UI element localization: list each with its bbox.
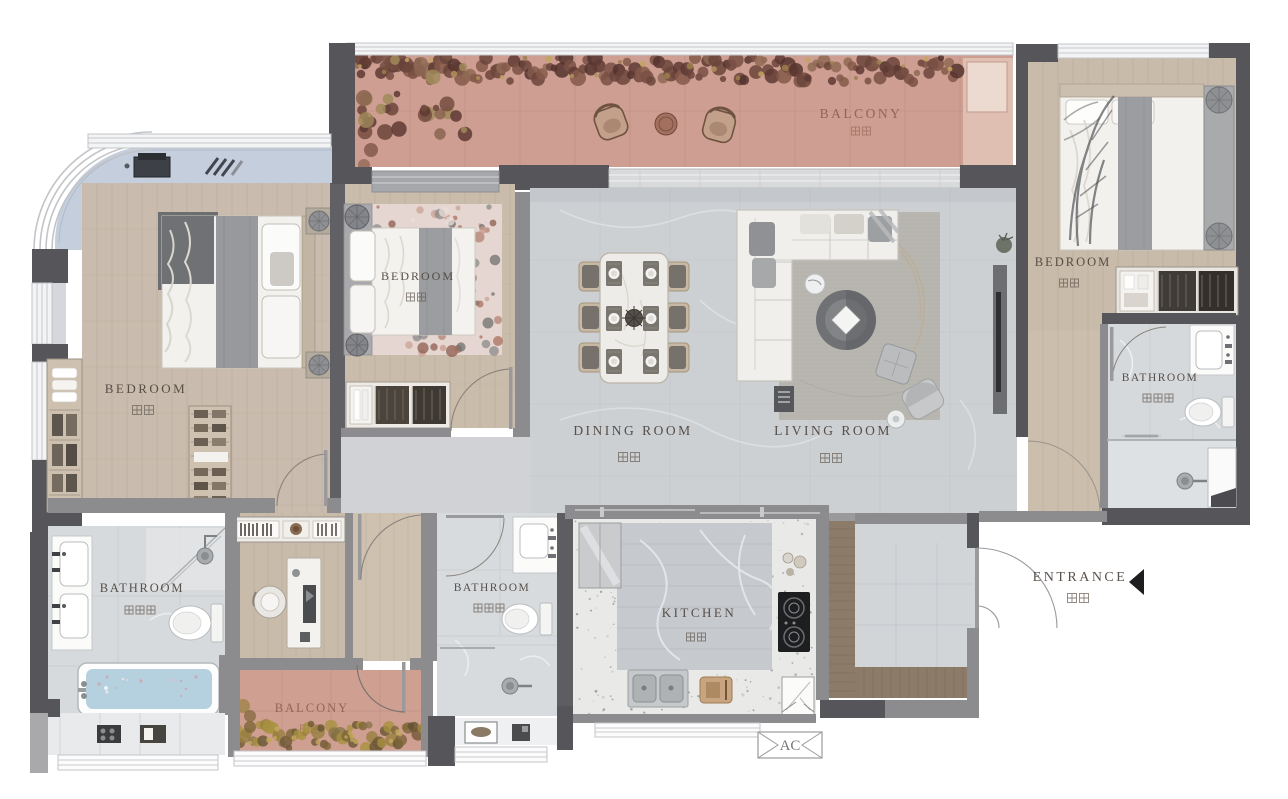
svg-text:DINING ROOM: DINING ROOM (573, 423, 692, 438)
svg-text:ENTRANCE: ENTRANCE (1033, 570, 1128, 585)
svg-text:LIVING ROOM: LIVING ROOM (774, 423, 892, 438)
svg-text:BEDROOM: BEDROOM (381, 269, 455, 283)
svg-text:AC: AC (780, 738, 801, 754)
svg-text:BATHROOM: BATHROOM (454, 582, 531, 594)
svg-text:BALCONY: BALCONY (820, 106, 903, 121)
svg-text:BEDROOM: BEDROOM (105, 381, 188, 396)
svg-text:BATHROOM: BATHROOM (1122, 372, 1199, 384)
svg-text:BATHROOM: BATHROOM (100, 581, 185, 595)
svg-text:BALCONY: BALCONY (275, 701, 349, 715)
svg-text:KITCHEN: KITCHEN (662, 605, 737, 620)
svg-text:BEDROOM: BEDROOM (1035, 255, 1112, 269)
